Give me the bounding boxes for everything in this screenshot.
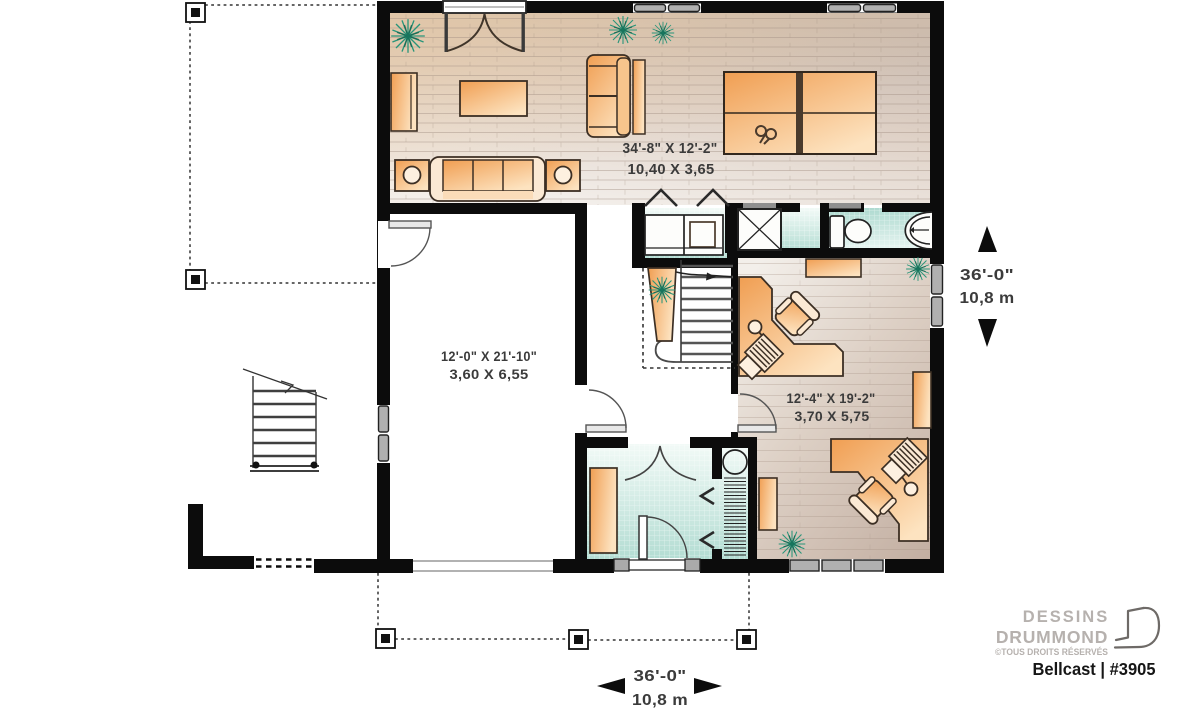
svg-text:DESSINS: DESSINS [1023, 608, 1109, 626]
svg-text:10,8 m: 10,8 m [632, 692, 688, 709]
svg-text:3,70 X 5,75: 3,70 X 5,75 [795, 408, 870, 424]
svg-text:3,60 X 6,55: 3,60 X 6,55 [450, 366, 529, 382]
svg-text:12'-0" X 21'-10": 12'-0" X 21'-10" [441, 348, 537, 364]
svg-text:34'-8" X 12'-2": 34'-8" X 12'-2" [623, 141, 718, 157]
svg-text:DRUMMOND: DRUMMOND [996, 627, 1108, 647]
svg-text:12'-4" X 19'-2": 12'-4" X 19'-2" [787, 390, 876, 406]
svg-text:10,8 m: 10,8 m [960, 290, 1015, 307]
svg-text:Bellcast | #3905: Bellcast | #3905 [1033, 659, 1156, 679]
svg-text:36'-0": 36'-0" [634, 668, 687, 685]
svg-text:36'-0": 36'-0" [960, 267, 1014, 284]
svg-text:10,40 X 3,65: 10,40 X 3,65 [628, 162, 715, 178]
svg-text:©TOUS DROITS RÉSERVÉS: ©TOUS DROITS RÉSERVÉS [995, 647, 1108, 657]
